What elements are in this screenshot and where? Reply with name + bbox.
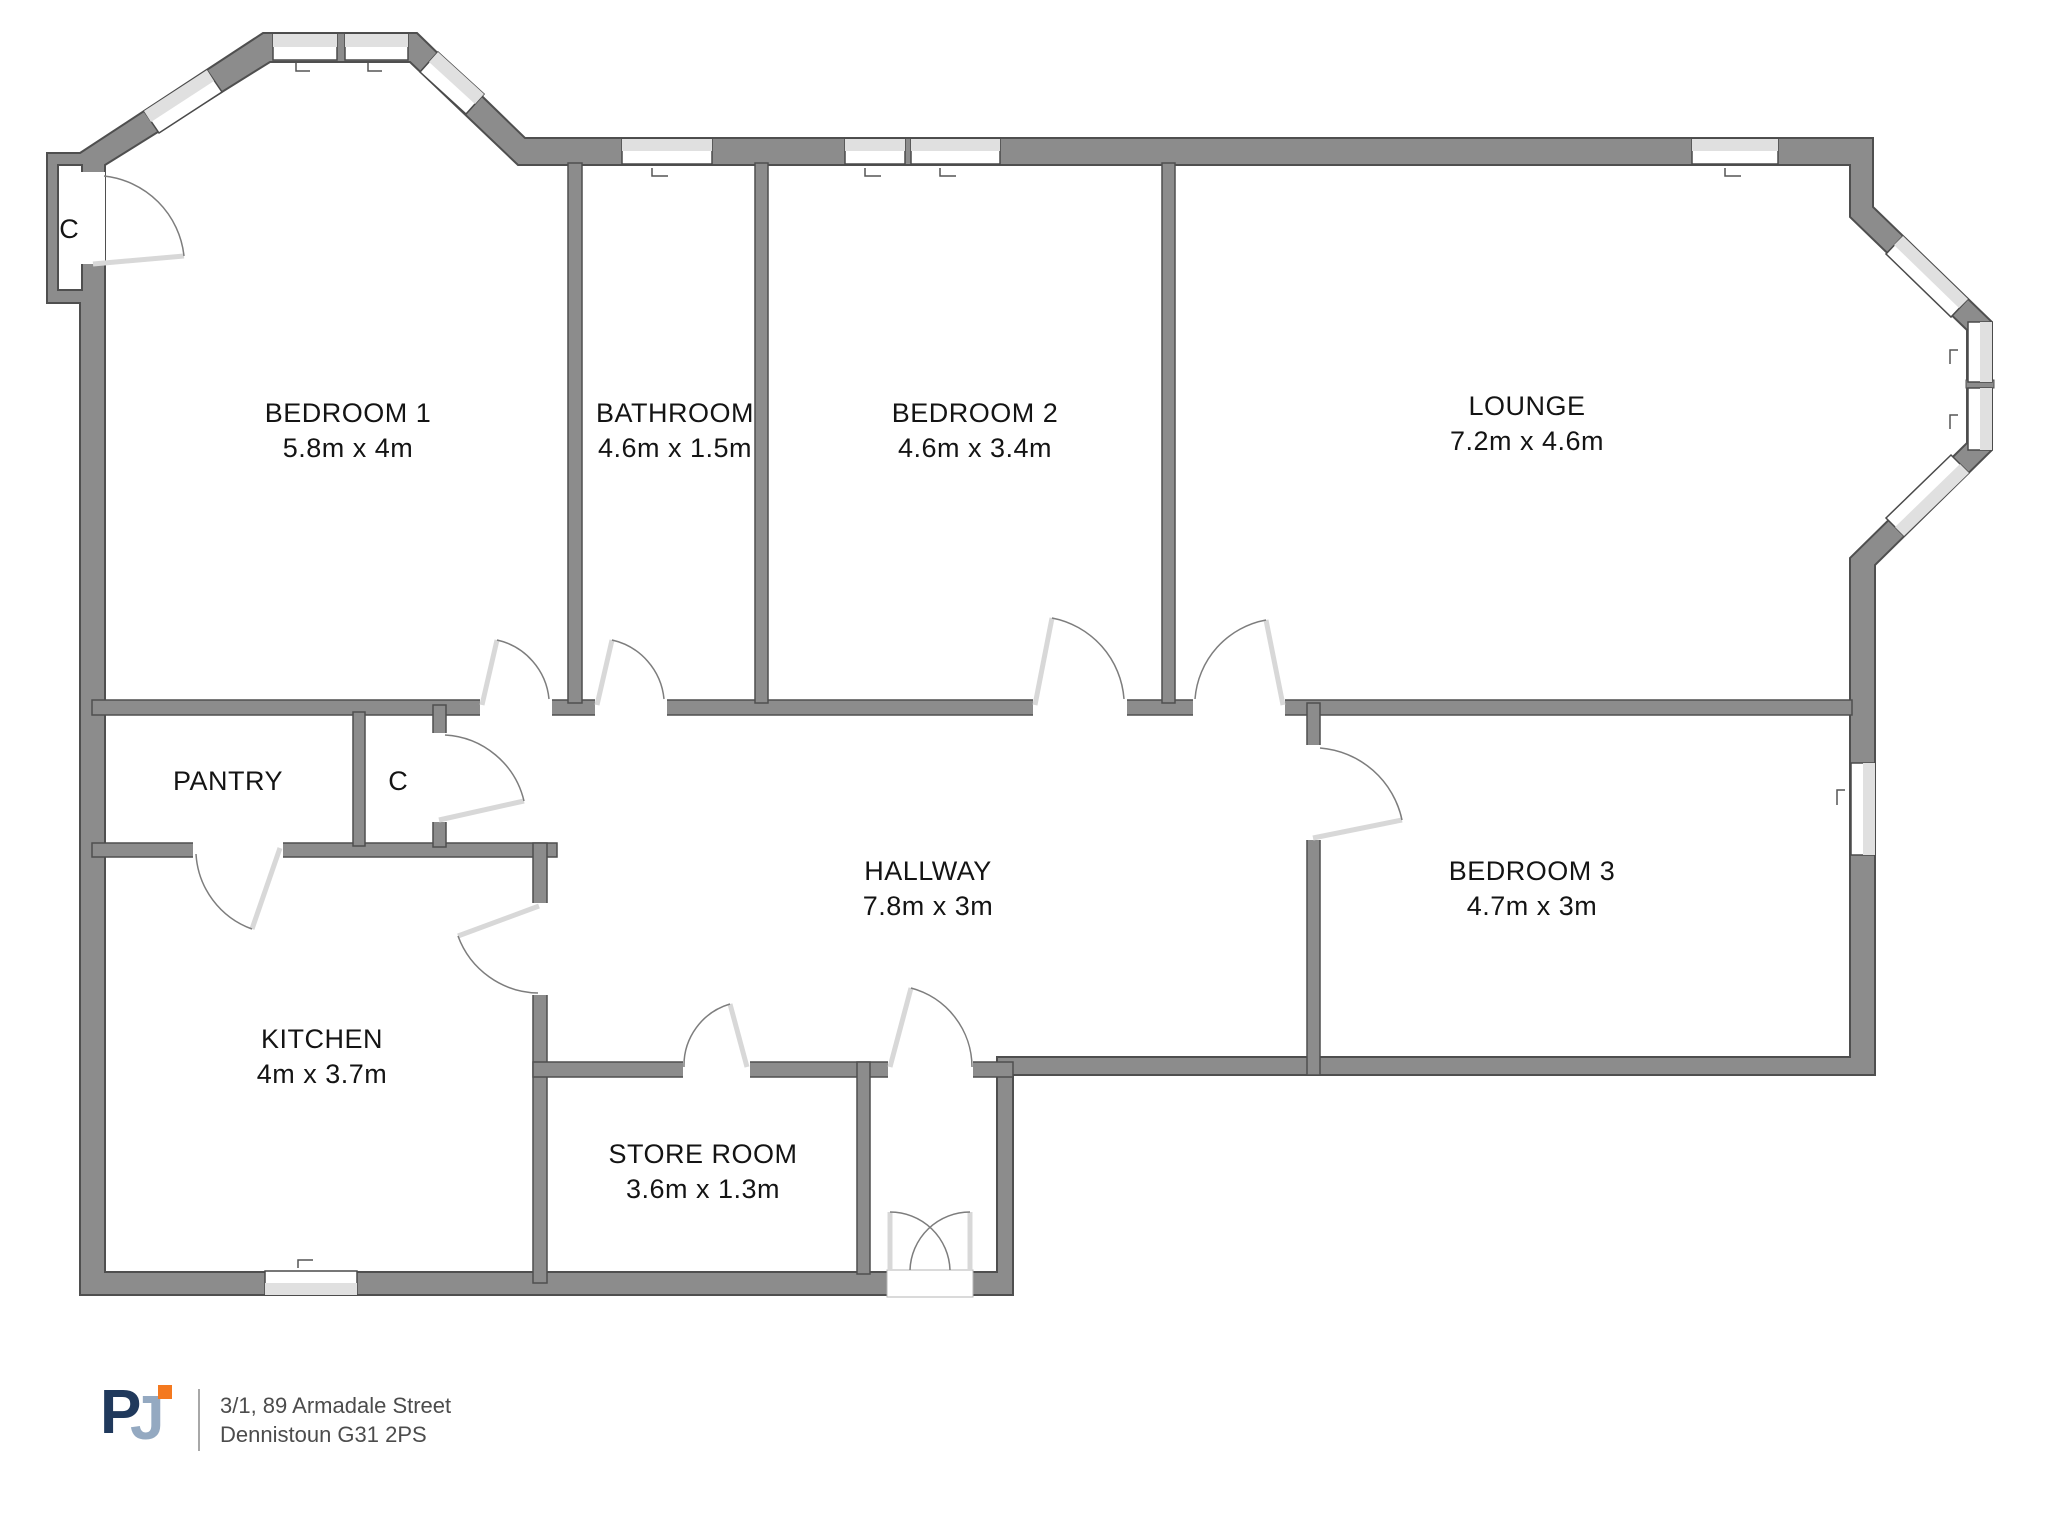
address-line2: Dennistoun G31 2PS xyxy=(220,1420,451,1449)
vent-mark-bay-upper-vertical xyxy=(1950,350,1958,364)
dims-bathroom: 4.6m x 1.5m xyxy=(598,433,752,463)
opening-bathroom xyxy=(595,698,667,717)
door-pantry-kitchen xyxy=(196,848,280,929)
label-kitchen: KITCHEN xyxy=(261,1024,383,1054)
door-bedroom1 xyxy=(482,640,549,705)
windows xyxy=(144,34,1994,1295)
window-lounge-bay-lower-vertical xyxy=(1968,388,1992,450)
floorplan-page: BEDROOM 1 5.8m x 4m BATHROOM 4.6m x 1.5m… xyxy=(0,0,2053,1516)
window-bedroom1-bay-left-top xyxy=(273,34,337,60)
vent-mark-bathroom xyxy=(652,168,668,176)
dims-bedroom2: 4.6m x 3.4m xyxy=(898,433,1052,463)
property-address: 3/1, 89 Armadale Street Dennistoun G31 2… xyxy=(220,1391,451,1449)
interior-walls xyxy=(92,163,1852,1283)
dims-bedroom1: 5.8m x 4m xyxy=(283,433,414,463)
label-hallway: HALLWAY xyxy=(864,856,992,886)
opening-kitchen xyxy=(531,903,549,995)
opening-bedroom1 xyxy=(480,698,552,717)
door-openings xyxy=(80,172,1322,1297)
pj-logo: P J xyxy=(100,1383,178,1457)
door-hall-closet xyxy=(439,735,524,820)
window-lounge-top xyxy=(1692,139,1778,164)
window-lounge-bay-upper-vertical xyxy=(1968,322,1992,382)
opening-bedroom3 xyxy=(1305,745,1322,840)
label-lounge: LOUNGE xyxy=(1468,391,1585,421)
window-lounge-bay-upper-diagonal xyxy=(1886,236,1968,317)
dims-bedroom3: 4.7m x 3m xyxy=(1467,891,1598,921)
footer-divider xyxy=(198,1389,200,1451)
window-bedroom1-bay-left-diagonal xyxy=(144,70,222,133)
door-lounge xyxy=(1195,620,1283,705)
wall-bathroom-bedroom2 xyxy=(755,163,768,703)
door-kitchen xyxy=(458,906,539,993)
wall-storeroom-vestibule xyxy=(857,1062,870,1274)
opening-pantry-kitchen xyxy=(193,841,283,859)
label-bedroom1-closet: C xyxy=(59,214,79,244)
door-bedroom3 xyxy=(1313,748,1402,838)
wall-bedroom2-lounge xyxy=(1162,163,1175,703)
label-bedroom3: BEDROOM 3 xyxy=(1449,856,1616,886)
window-bedroom3 xyxy=(1851,763,1875,855)
vent-mark-lounge-top xyxy=(1725,168,1741,176)
window-bathroom xyxy=(622,139,712,164)
opening-hall-closet xyxy=(431,733,448,822)
wall-pantry-kitchen xyxy=(92,843,557,857)
window-bedroom2-right xyxy=(911,139,1000,164)
dims-lounge: 7.2m x 4.6m xyxy=(1450,426,1604,456)
dims-storeroom: 3.6m x 1.3m xyxy=(626,1174,780,1204)
door-bedroom2 xyxy=(1035,618,1124,705)
label-storeroom: STORE ROOM xyxy=(608,1139,797,1169)
vent-mark-bay-left xyxy=(296,63,310,71)
vent-mark-bedroom2-left xyxy=(865,168,881,176)
vent-mark-bedroom3 xyxy=(1837,790,1845,805)
window-bedroom2-left xyxy=(845,139,905,164)
opening-bedroom2 xyxy=(1033,698,1127,717)
opening-lounge xyxy=(1193,698,1285,717)
dims-kitchen: 4m x 3.7m xyxy=(257,1059,388,1089)
doors xyxy=(93,176,1402,1270)
vent-mark-bay-right xyxy=(368,63,382,71)
vent-mark-kitchen xyxy=(298,1260,313,1268)
wall-bedroom1-bathroom xyxy=(568,163,582,703)
door-entrance-right xyxy=(910,1212,970,1270)
exterior-wall-band xyxy=(47,33,1992,1295)
door-bedroom1-closet xyxy=(93,176,184,264)
wall-pantry-closet xyxy=(353,712,365,846)
opening-storeroom xyxy=(683,1060,750,1079)
logo-orange-dot xyxy=(158,1385,172,1399)
window-kitchen xyxy=(265,1271,357,1295)
window-lounge-bay-lower-diagonal xyxy=(1886,455,1969,536)
footer: P J 3/1, 89 Armadale Street Dennistoun G… xyxy=(100,1383,451,1457)
exterior-walls xyxy=(47,33,1992,1295)
window-bedroom1-bay-right-diagonal xyxy=(420,52,484,114)
dims-hallway: 7.8m x 3m xyxy=(863,891,994,921)
door-entrance-left xyxy=(890,1212,950,1270)
label-bedroom2: BEDROOM 2 xyxy=(892,398,1059,428)
door-vestibule xyxy=(890,988,972,1067)
opening-entrance xyxy=(887,1270,973,1297)
opening-bedroom1-closet xyxy=(80,172,105,264)
opening-vestibule xyxy=(888,1060,973,1079)
label-pantry: PANTRY xyxy=(173,766,283,796)
label-bathroom: BATHROOM xyxy=(596,398,754,428)
label-bedroom1: BEDROOM 1 xyxy=(265,398,432,428)
door-storeroom xyxy=(684,1004,747,1067)
vent-mark-bay-lower-vertical xyxy=(1950,415,1958,429)
label-hall-closet: C xyxy=(388,766,408,796)
floorplan-drawing: BEDROOM 1 5.8m x 4m BATHROOM 4.6m x 1.5m… xyxy=(0,0,2053,1516)
vent-mark-bedroom2-right xyxy=(940,168,956,176)
window-bedroom1-bay-right-top xyxy=(345,34,408,60)
address-line1: 3/1, 89 Armadale Street xyxy=(220,1391,451,1420)
door-bathroom xyxy=(597,640,664,705)
